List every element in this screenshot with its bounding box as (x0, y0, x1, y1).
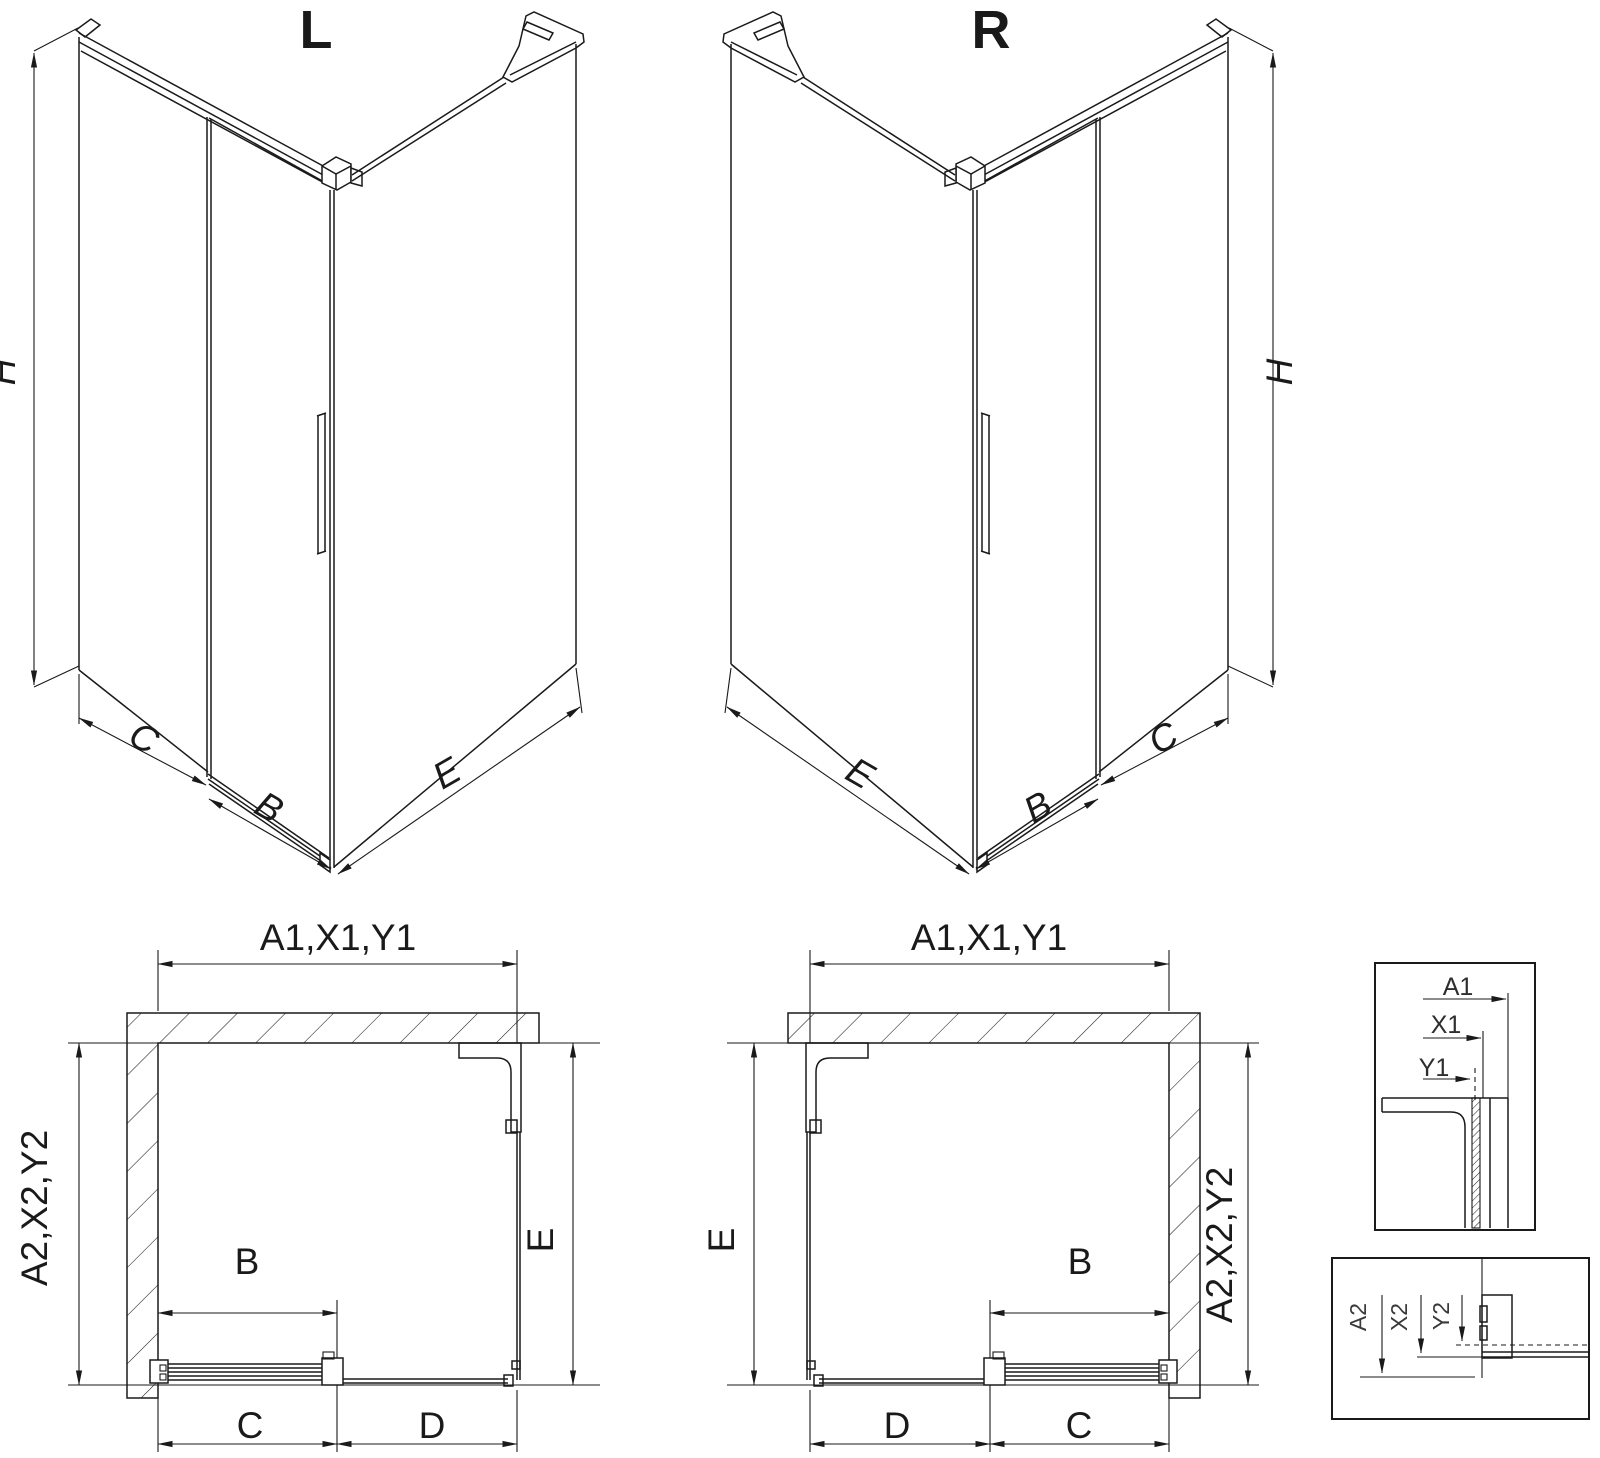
wall-hatch-left-plan (127, 1013, 539, 1398)
detail-label-a1: A1 (1443, 973, 1474, 1001)
dim-label-a2-plan-left: A2,X2,Y2 (14, 1130, 55, 1286)
detail-top-section: A1 X1 Y1 (1375, 963, 1535, 1230)
glass-section-hatch (1472, 1098, 1480, 1228)
dim-label-a1-plan-right: A1,X1,Y1 (911, 917, 1067, 958)
dim-label-c-plan-left: C (237, 1405, 264, 1446)
wall-hatch-right-plan (788, 1013, 1200, 1398)
plan-right-view: A1,X1,Y1 E A2,X2,Y2 B D C (701, 917, 1259, 1452)
dim-label-e-plan-right: E (701, 1228, 742, 1253)
dim-label-a1-plan-left: A1,X1,Y1 (260, 917, 416, 958)
iso-right-view: R H E B C (723, 0, 1300, 874)
dim-label-b-plan-right: B (1068, 1241, 1093, 1282)
detail-label-x1: X1 (1431, 1011, 1462, 1039)
dim-label-d-plan-left: D (419, 1405, 446, 1446)
dim-label-e-plan-left: E (520, 1228, 561, 1253)
detail-label-a2: A2 (1345, 1303, 1371, 1331)
dim-label-h-left: H (0, 358, 23, 385)
detail-label-y2: Y2 (1428, 1302, 1454, 1330)
dim-label-a2-plan-right: A2,X2,Y2 (1199, 1167, 1240, 1323)
detail-bottom-section: A2 X2 Y2 (1332, 1258, 1589, 1419)
dim-label-e-iso-right: E (839, 749, 882, 798)
dim-label-b-plan-left: B (235, 1241, 260, 1282)
iso-left-title: L (300, 0, 333, 60)
detail-label-y1: Y1 (1419, 1054, 1450, 1082)
iso-left-view: L H C B E (0, 0, 584, 874)
dim-label-c-iso-right: C (1142, 713, 1185, 762)
dim-label-e-iso-left: E (426, 749, 469, 798)
dim-label-h-right: H (1259, 358, 1300, 385)
detail-label-x2: X2 (1386, 1303, 1412, 1331)
dim-label-b-iso-left: B (248, 783, 290, 831)
shower-enclosure-diagram: L H C B E R H E B C A1,X1,Y1 A2,X2,Y2 E … (0, 0, 1600, 1458)
dim-label-c-iso-left: C (122, 714, 165, 763)
dim-label-d-plan-right: D (884, 1405, 911, 1446)
technical-drawing-page: L H C B E R H E B C A1,X1,Y1 A2,X2,Y2 E … (0, 0, 1600, 1458)
dim-label-c-plan-right: C (1066, 1405, 1093, 1446)
iso-right-title: R (972, 0, 1011, 60)
plan-left-view: A1,X1,Y1 A2,X2,Y2 E B C D (14, 917, 600, 1452)
